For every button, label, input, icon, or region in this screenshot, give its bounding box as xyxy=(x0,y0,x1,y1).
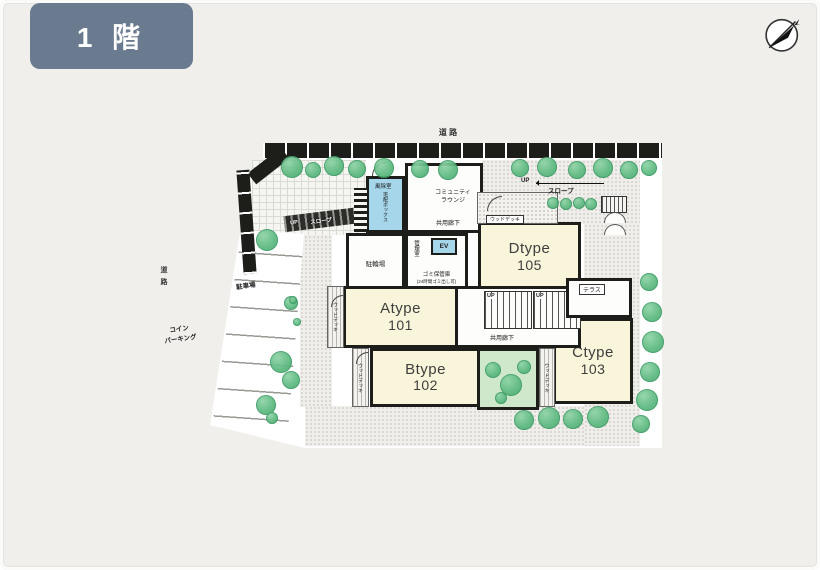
terrace-label: テラス xyxy=(579,284,605,295)
tree-icon xyxy=(640,273,658,291)
tree-icon xyxy=(568,161,586,179)
community-lounge-label: コミュニティ ラウンジ xyxy=(425,190,481,206)
wood-deck-label: ウッドデッキ xyxy=(544,363,551,393)
wood-deck-label: ウッドデッキ xyxy=(486,215,524,224)
tree-icon xyxy=(438,160,458,180)
elevator: EV xyxy=(431,238,457,255)
lounge-line1: コミュニティ xyxy=(425,190,481,198)
delivery-box-label: 宅配ボックス xyxy=(382,192,389,232)
garbage-label: ゴミ保管庫 (24時間ゴミ出し可) xyxy=(408,272,465,284)
tree-icon xyxy=(563,409,583,429)
wood-deck-c: ウッドデッキ xyxy=(539,348,555,407)
tree-icon xyxy=(374,158,394,178)
entrance-steps xyxy=(601,196,627,213)
unit-number-105: 105 xyxy=(517,258,542,273)
tree-icon xyxy=(642,302,662,322)
tree-icon xyxy=(632,415,650,433)
lounge-line2: ラウンジ xyxy=(425,198,481,206)
tree-icon xyxy=(585,198,597,210)
tree-icon xyxy=(620,161,638,179)
tree-icon xyxy=(593,158,613,178)
windbreak-label: 風除室 xyxy=(375,182,392,190)
garbage-line2: (24時間ゴミ出し可) xyxy=(408,279,465,284)
tree-icon xyxy=(281,156,303,178)
unit-type-b: Btype xyxy=(405,362,446,379)
unit-type-a: Atype xyxy=(380,301,421,318)
corridor-top-label: 共用廊下 xyxy=(436,218,460,227)
road-top xyxy=(263,143,662,158)
staircase-left: UP xyxy=(484,291,532,329)
ramp-slope-label: スロープ xyxy=(310,215,332,226)
stairs-up-label: UP xyxy=(535,293,545,299)
tree-icon xyxy=(573,197,585,209)
north-arrow-icon xyxy=(763,14,803,54)
mailbox-wall xyxy=(354,188,367,232)
unit-number-102: 102 xyxy=(413,378,438,393)
unit-number-103: 103 xyxy=(581,362,606,377)
tree-icon xyxy=(270,351,292,373)
tree-icon xyxy=(495,392,507,404)
tree-icon xyxy=(560,198,572,210)
wood-deck-label: ウッドデッキ xyxy=(357,363,364,393)
tree-icon xyxy=(289,296,297,304)
tree-icon xyxy=(305,162,321,178)
corridor-mid-label: 共用廊下 xyxy=(490,333,514,342)
slope-arrow-line xyxy=(536,183,604,184)
floor-plan-page: 1 階 駐車場 コイン パーキング UP スロープ 道 路 道路 コミュニティ … xyxy=(0,0,820,570)
ramp-up-label: UP xyxy=(290,220,298,227)
slope-label: スロープ xyxy=(548,185,574,195)
floor-tab-1f[interactable]: 1 階 xyxy=(30,3,193,69)
tree-icon xyxy=(411,160,429,178)
stair-hall: UP UP 共用廊下 xyxy=(455,286,581,348)
coin-parking-label: コイン パーキング xyxy=(147,321,213,350)
tree-icon xyxy=(547,197,559,209)
tree-icon xyxy=(324,156,344,176)
tree-icon xyxy=(485,362,501,378)
unit-room-102: Btype 102 xyxy=(370,348,481,407)
slope-up-label: UP xyxy=(521,178,529,184)
tree-icon xyxy=(517,360,531,374)
stairs-up-label: UP xyxy=(486,293,496,299)
bicycle-parking-label: 駐輪場 xyxy=(349,258,402,268)
garbage-line1: ゴミ保管庫 xyxy=(408,272,465,279)
tree-icon xyxy=(348,160,366,178)
tree-icon xyxy=(537,157,557,177)
management-office-label: 管理室 xyxy=(412,240,420,268)
tree-icon xyxy=(636,389,658,411)
tree-icon xyxy=(266,412,278,424)
tree-icon xyxy=(293,318,301,326)
terrace: テラス xyxy=(566,278,632,318)
unit-type-d: Dtype xyxy=(509,241,551,258)
tree-icon xyxy=(282,371,300,389)
road-top-label: 道 路 xyxy=(423,127,473,138)
windbreak-room: 風除室 宅配ボックス xyxy=(366,176,405,233)
service-block: 管理室 EV ゴミ保管庫 (24時間ゴミ出し可) xyxy=(405,233,468,290)
tree-icon xyxy=(640,362,660,382)
tree-icon xyxy=(511,159,529,177)
bicycle-parking-room: 駐輪場 xyxy=(346,233,405,290)
unit-number-101: 101 xyxy=(388,318,413,333)
unit-room-101: Atype 101 xyxy=(343,286,458,348)
tree-icon xyxy=(641,160,657,176)
tree-icon xyxy=(587,406,609,428)
tree-icon xyxy=(256,229,278,251)
tree-icon xyxy=(514,410,534,430)
road-left-label: 道路 xyxy=(158,266,168,290)
tree-icon xyxy=(642,331,664,353)
tree-icon xyxy=(538,407,560,429)
